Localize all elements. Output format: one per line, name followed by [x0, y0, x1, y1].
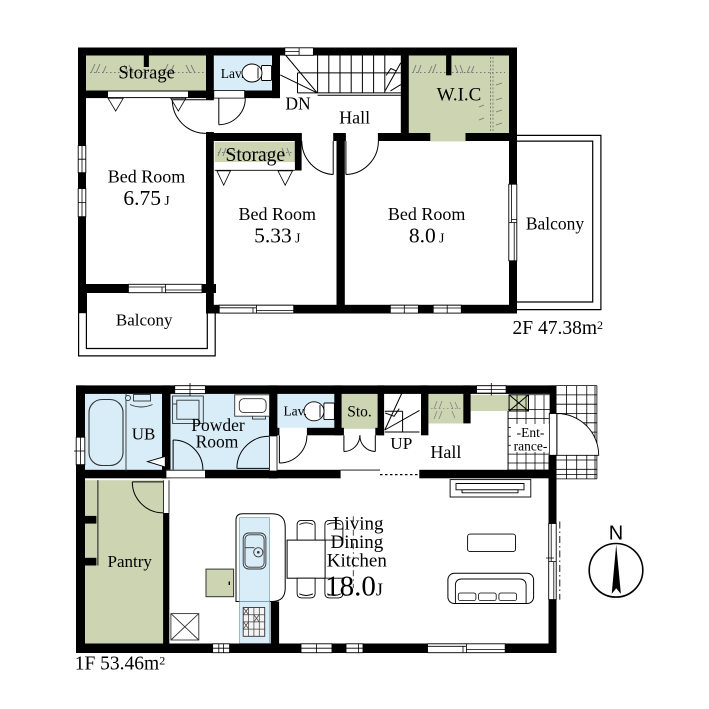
- svg-text:Bed Room: Bed Room: [388, 204, 466, 224]
- svg-text:Sto.: Sto.: [347, 404, 372, 421]
- svg-text:Bed Room: Bed Room: [108, 167, 186, 187]
- svg-text:UB: UB: [132, 425, 156, 444]
- svg-text:1F 53.46m2: 1F 53.46m2: [75, 654, 166, 675]
- svg-text:Balcony: Balcony: [116, 311, 173, 330]
- svg-text:Storage: Storage: [118, 64, 175, 84]
- svg-text:Storage: Storage: [226, 145, 286, 166]
- svg-text:UP: UP: [390, 434, 412, 453]
- svg-text:N: N: [609, 523, 623, 545]
- svg-text:DN: DN: [285, 94, 311, 114]
- svg-text:Lav.: Lav.: [221, 66, 245, 81]
- svg-text:2F 47.38m2: 2F 47.38m2: [513, 318, 604, 339]
- svg-text:Kitchen: Kitchen: [327, 551, 388, 572]
- svg-text:Balcony: Balcony: [526, 213, 585, 233]
- svg-text:18.0J: 18.0J: [325, 571, 383, 603]
- svg-text:Hall: Hall: [339, 107, 370, 127]
- svg-text:Lav.: Lav.: [283, 404, 307, 419]
- svg-text:W.I.C: W.I.C: [437, 84, 482, 105]
- svg-text:Room: Room: [196, 431, 239, 451]
- svg-text:Hall: Hall: [430, 442, 461, 462]
- svg-text:rance-: rance-: [514, 438, 548, 453]
- svg-text:Bed Room: Bed Room: [239, 204, 317, 224]
- svg-text:Pantry: Pantry: [108, 552, 153, 571]
